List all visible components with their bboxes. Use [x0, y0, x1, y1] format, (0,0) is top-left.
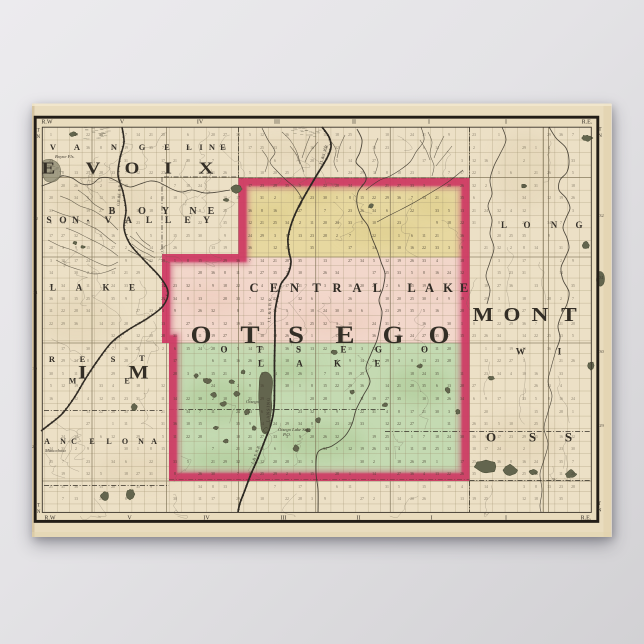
svg-text:9: 9: [199, 372, 201, 376]
svg-text:27: 27: [99, 209, 103, 213]
svg-text:O: O: [429, 322, 450, 349]
svg-text:26: 26: [571, 196, 575, 200]
svg-text:10: 10: [385, 133, 389, 137]
svg-text:17: 17: [410, 410, 414, 414]
svg-text:32: 32: [599, 213, 604, 218]
svg-text:30: 30: [124, 447, 128, 451]
svg-text:27: 27: [360, 497, 364, 501]
svg-text:28: 28: [559, 410, 563, 414]
svg-text:33: 33: [124, 284, 128, 288]
svg-text:33: 33: [559, 372, 563, 376]
svg-text:4: 4: [548, 146, 550, 150]
svg-text:17: 17: [74, 259, 78, 263]
svg-text:9: 9: [174, 309, 176, 313]
svg-text:30: 30: [460, 435, 464, 439]
svg-text:18: 18: [124, 472, 128, 476]
svg-text:6: 6: [100, 435, 102, 439]
svg-text:1: 1: [535, 146, 537, 150]
svg-text:28: 28: [74, 309, 78, 313]
svg-text:35: 35: [310, 246, 314, 250]
svg-text:13: 13: [534, 284, 538, 288]
svg-text:27: 27: [397, 472, 401, 476]
svg-text:36: 36: [460, 234, 464, 238]
svg-text:7: 7: [324, 372, 326, 376]
svg-text:25: 25: [310, 322, 314, 326]
svg-text:13: 13: [460, 209, 464, 213]
svg-text:18: 18: [435, 397, 439, 401]
svg-text:13: 13: [198, 297, 202, 301]
svg-text:16: 16: [260, 384, 264, 388]
svg-text:20: 20: [571, 472, 575, 476]
svg-text:R: R: [332, 281, 342, 295]
svg-text:24: 24: [248, 234, 252, 238]
svg-text:22: 22: [323, 347, 327, 351]
svg-text:17: 17: [522, 259, 526, 263]
svg-text:29: 29: [547, 133, 551, 137]
svg-text:14: 14: [435, 146, 439, 150]
svg-text:21: 21: [260, 221, 264, 225]
svg-text:14: 14: [559, 271, 563, 275]
svg-text:2: 2: [485, 184, 487, 188]
svg-text:21: 21: [211, 460, 215, 464]
svg-text:32: 32: [323, 322, 327, 326]
svg-text:17: 17: [372, 271, 376, 275]
svg-text:25: 25: [260, 146, 264, 150]
svg-text:1: 1: [572, 410, 574, 414]
svg-text:25: 25: [99, 497, 103, 501]
svg-text:G: G: [139, 142, 146, 152]
svg-text:32: 32: [497, 209, 501, 213]
svg-text:15: 15: [372, 146, 376, 150]
svg-text:36: 36: [236, 259, 240, 263]
svg-text:34: 34: [460, 397, 464, 401]
svg-text:15: 15: [99, 485, 103, 489]
svg-text:32: 32: [335, 146, 339, 150]
svg-text:22: 22: [372, 234, 376, 238]
svg-text:23: 23: [435, 359, 439, 363]
svg-text:15: 15: [161, 447, 165, 451]
svg-text:15: 15: [186, 347, 190, 351]
svg-text:13: 13: [547, 485, 551, 489]
svg-text:C: C: [71, 437, 77, 446]
svg-text:A: A: [151, 437, 157, 446]
svg-text:23: 23: [559, 485, 563, 489]
svg-text:27: 27: [86, 422, 90, 426]
svg-text:18: 18: [447, 221, 451, 225]
svg-text:25: 25: [484, 497, 488, 501]
svg-text:2: 2: [473, 146, 475, 150]
svg-text:11: 11: [460, 372, 464, 376]
svg-text:34: 34: [534, 472, 538, 476]
svg-text:24: 24: [497, 447, 501, 451]
svg-text:29: 29: [484, 297, 488, 301]
svg-text:32: 32: [236, 460, 240, 464]
svg-text:O: O: [504, 305, 521, 326]
svg-text:21: 21: [472, 209, 476, 213]
svg-text:W: W: [516, 348, 526, 358]
svg-text:36: 36: [360, 384, 364, 388]
svg-text:22: 22: [273, 297, 277, 301]
svg-text:4: 4: [510, 209, 512, 213]
svg-text:8: 8: [386, 171, 388, 175]
svg-text:N: N: [37, 510, 41, 515]
svg-text:18: 18: [186, 184, 190, 188]
svg-text:10: 10: [260, 334, 264, 338]
svg-text:26: 26: [173, 246, 177, 250]
svg-text:13: 13: [310, 347, 314, 351]
svg-text:10: 10: [61, 259, 65, 263]
svg-text:2: 2: [299, 221, 301, 225]
svg-text:21: 21: [49, 485, 53, 489]
svg-text:V: V: [120, 120, 125, 126]
svg-text:21: 21: [124, 271, 128, 275]
svg-text:10: 10: [509, 422, 513, 426]
svg-text:35: 35: [285, 184, 289, 188]
svg-text:26: 26: [372, 447, 376, 451]
svg-text:24: 24: [484, 209, 488, 213]
svg-text:33: 33: [522, 397, 526, 401]
svg-text:A: A: [44, 437, 50, 446]
svg-text:V: V: [127, 515, 132, 521]
svg-text:32: 32: [447, 447, 451, 451]
svg-text:36: 36: [173, 422, 177, 426]
svg-text:10: 10: [186, 422, 190, 426]
svg-text:24: 24: [236, 410, 240, 414]
svg-text:12: 12: [99, 397, 103, 401]
svg-text:5: 5: [498, 422, 500, 426]
svg-text:13: 13: [323, 259, 327, 263]
svg-text:22: 22: [372, 196, 376, 200]
svg-text:11: 11: [124, 422, 128, 426]
svg-text:19: 19: [372, 397, 376, 401]
svg-text:11: 11: [223, 359, 227, 363]
svg-text:15: 15: [534, 410, 538, 414]
svg-text:3: 3: [187, 334, 189, 338]
svg-text:9: 9: [448, 133, 450, 137]
svg-text:34: 34: [335, 271, 339, 275]
svg-text:30: 30: [198, 397, 202, 401]
svg-text:10: 10: [298, 271, 302, 275]
svg-text:3: 3: [523, 485, 525, 489]
svg-text:20: 20: [310, 397, 314, 401]
svg-text:14: 14: [534, 246, 538, 250]
svg-text:4: 4: [150, 196, 152, 200]
svg-text:18: 18: [397, 460, 401, 464]
svg-text:9: 9: [548, 234, 550, 238]
svg-text:11: 11: [173, 435, 177, 439]
svg-text:35: 35: [410, 309, 414, 313]
svg-text:3: 3: [461, 159, 463, 163]
svg-text:L: L: [165, 216, 171, 226]
svg-text:19: 19: [509, 347, 513, 351]
svg-text:G: G: [383, 322, 404, 349]
svg-text:30: 30: [335, 309, 339, 313]
svg-text:12: 12: [223, 322, 227, 326]
svg-text:3: 3: [311, 497, 313, 501]
svg-text:36: 36: [86, 146, 90, 150]
svg-text:I: I: [164, 159, 172, 178]
svg-text:O: O: [523, 220, 530, 230]
svg-text:7: 7: [212, 447, 214, 451]
svg-text:31: 31: [484, 422, 488, 426]
svg-text:O: O: [125, 159, 140, 178]
svg-text:2: 2: [237, 384, 239, 388]
svg-text:17: 17: [248, 184, 252, 188]
svg-text:1: 1: [137, 447, 139, 451]
svg-text:19: 19: [86, 209, 90, 213]
svg-text:6: 6: [274, 159, 276, 163]
svg-text:10: 10: [223, 196, 227, 200]
svg-text:13: 13: [435, 472, 439, 476]
svg-text:15: 15: [74, 297, 78, 301]
svg-text:30: 30: [49, 372, 53, 376]
svg-text:31: 31: [422, 133, 426, 137]
svg-text:19: 19: [559, 196, 563, 200]
svg-text:8: 8: [535, 485, 537, 489]
svg-text:8: 8: [62, 171, 64, 175]
svg-text:11: 11: [323, 133, 327, 137]
svg-text:T: T: [37, 129, 40, 134]
svg-text:29: 29: [136, 271, 140, 275]
svg-text:32: 32: [310, 410, 314, 414]
svg-text:18: 18: [335, 133, 339, 137]
svg-text:E: E: [129, 283, 135, 293]
svg-text:7: 7: [411, 196, 413, 200]
svg-text:N: N: [36, 135, 40, 140]
svg-text:9: 9: [199, 209, 201, 213]
svg-text:5: 5: [274, 359, 276, 363]
svg-text:21: 21: [435, 234, 439, 238]
svg-text:24: 24: [571, 397, 575, 401]
svg-text:28: 28: [460, 309, 464, 313]
svg-text:28: 28: [335, 184, 339, 188]
svg-text:18: 18: [310, 309, 314, 313]
svg-text:21: 21: [435, 196, 439, 200]
svg-text:18: 18: [149, 209, 153, 213]
svg-text:20: 20: [310, 435, 314, 439]
svg-text:1: 1: [485, 347, 487, 351]
svg-text:22: 22: [186, 435, 190, 439]
svg-text:34: 34: [236, 133, 240, 137]
svg-text:14: 14: [49, 271, 53, 275]
svg-text:5: 5: [199, 284, 201, 288]
svg-text:36: 36: [74, 322, 78, 326]
svg-text:P.O.: P.O.: [282, 432, 291, 437]
svg-text:Y: Y: [203, 216, 210, 226]
svg-text:9: 9: [336, 410, 338, 414]
svg-text:27: 27: [410, 422, 414, 426]
svg-text:10: 10: [397, 246, 401, 250]
svg-text:O: O: [220, 345, 227, 355]
svg-text:19: 19: [460, 297, 464, 301]
svg-text:26: 26: [323, 271, 327, 275]
svg-text:33: 33: [348, 221, 352, 225]
svg-text:33: 33: [273, 146, 277, 150]
svg-text:28: 28: [124, 322, 128, 326]
svg-text:12: 12: [348, 447, 352, 451]
svg-text:16: 16: [410, 246, 414, 250]
svg-text:27: 27: [522, 309, 526, 313]
svg-text:20: 20: [161, 246, 165, 250]
svg-text:S: S: [111, 354, 116, 364]
svg-text:25: 25: [522, 472, 526, 476]
svg-text:3: 3: [324, 284, 326, 288]
svg-text:19: 19: [111, 196, 115, 200]
svg-text:34: 34: [298, 422, 302, 426]
svg-text:23: 23: [124, 397, 128, 401]
svg-text:17: 17: [248, 146, 252, 150]
svg-text:T: T: [312, 281, 321, 295]
svg-text:7: 7: [125, 133, 127, 137]
svg-text:32: 32: [186, 284, 190, 288]
svg-text:11: 11: [410, 447, 414, 451]
svg-text:26: 26: [223, 171, 227, 175]
svg-text:23: 23: [310, 234, 314, 238]
svg-text:N: N: [532, 305, 549, 326]
svg-text:35: 35: [136, 485, 140, 489]
svg-text:20: 20: [111, 485, 115, 489]
svg-text:23: 23: [385, 146, 389, 150]
svg-text:32: 32: [460, 271, 464, 275]
svg-text:22: 22: [534, 334, 538, 338]
svg-text:26: 26: [410, 460, 414, 464]
svg-text:17: 17: [460, 171, 464, 175]
svg-text:6: 6: [336, 485, 338, 489]
svg-text:25: 25: [410, 297, 414, 301]
svg-text:27: 27: [111, 246, 115, 250]
svg-text:L: L: [186, 142, 192, 152]
svg-text:1: 1: [174, 259, 176, 263]
svg-text:8: 8: [411, 359, 413, 363]
svg-text:25: 25: [360, 372, 364, 376]
svg-text:4: 4: [461, 485, 463, 489]
svg-text:24: 24: [111, 284, 115, 288]
svg-text:3: 3: [398, 359, 400, 363]
svg-text:34: 34: [61, 284, 65, 288]
svg-text:8: 8: [523, 246, 525, 250]
svg-text:O: O: [486, 430, 496, 445]
svg-text:15: 15: [460, 334, 464, 338]
svg-text:16: 16: [534, 372, 538, 376]
svg-text:26: 26: [323, 435, 327, 439]
svg-text:28: 28: [547, 297, 551, 301]
svg-text:4: 4: [436, 297, 438, 301]
svg-text:16: 16: [310, 146, 314, 150]
svg-text:S: S: [565, 430, 572, 445]
svg-text:7: 7: [572, 133, 574, 137]
svg-text:11: 11: [198, 497, 202, 501]
svg-text:E: E: [270, 281, 278, 295]
svg-text:1: 1: [286, 309, 288, 313]
svg-text:14: 14: [348, 159, 352, 163]
svg-text:33: 33: [248, 410, 252, 414]
svg-text:29: 29: [223, 259, 227, 263]
svg-text:27: 27: [472, 384, 476, 388]
svg-text:2: 2: [162, 347, 164, 351]
svg-text:19: 19: [248, 271, 252, 275]
svg-text:23: 23: [298, 410, 302, 414]
svg-text:35: 35: [111, 297, 115, 301]
svg-text:7: 7: [560, 221, 562, 225]
svg-text:15: 15: [111, 397, 115, 401]
svg-text:19: 19: [360, 447, 364, 451]
svg-text:1: 1: [112, 422, 114, 426]
svg-text:T: T: [139, 353, 145, 363]
svg-text:6: 6: [299, 472, 301, 476]
svg-text:3: 3: [50, 259, 52, 263]
svg-text:35: 35: [49, 460, 53, 464]
svg-text:28: 28: [223, 297, 227, 301]
svg-text:21: 21: [248, 435, 252, 439]
svg-text:28: 28: [161, 334, 165, 338]
svg-text:21: 21: [173, 159, 177, 163]
svg-text:25: 25: [186, 234, 190, 238]
svg-text:21: 21: [559, 359, 563, 363]
svg-text:1: 1: [274, 397, 276, 401]
svg-text:36: 36: [248, 209, 252, 213]
svg-text:E: E: [89, 437, 94, 446]
svg-text:25: 25: [348, 133, 352, 137]
svg-text:5: 5: [373, 259, 375, 263]
svg-text:29: 29: [32, 444, 37, 449]
svg-text:31: 31: [149, 472, 153, 476]
svg-text:8: 8: [510, 460, 512, 464]
svg-text:16: 16: [435, 309, 439, 313]
svg-text:8: 8: [423, 271, 425, 275]
svg-text:28: 28: [161, 133, 165, 137]
svg-text:9: 9: [461, 246, 463, 250]
svg-text:32: 32: [211, 309, 215, 313]
svg-text:8: 8: [311, 384, 313, 388]
svg-text:19: 19: [161, 284, 165, 288]
svg-text:35: 35: [298, 259, 302, 263]
svg-text:4: 4: [349, 146, 351, 150]
svg-text:6: 6: [125, 460, 127, 464]
svg-text:31: 31: [599, 275, 604, 280]
svg-text:O: O: [191, 322, 212, 349]
svg-text:35: 35: [460, 196, 464, 200]
svg-text:32: 32: [34, 216, 39, 221]
svg-text:E: E: [164, 142, 170, 152]
svg-text:16: 16: [298, 196, 302, 200]
svg-text:8: 8: [261, 209, 263, 213]
svg-text:15: 15: [422, 485, 426, 489]
svg-text:30: 30: [599, 349, 604, 354]
svg-text:35: 35: [397, 397, 401, 401]
svg-text:7: 7: [423, 435, 425, 439]
svg-text:10: 10: [522, 372, 526, 376]
svg-text:T: T: [37, 504, 40, 509]
svg-text:T: T: [598, 128, 601, 133]
svg-text:N: N: [290, 281, 299, 295]
svg-text:13: 13: [74, 497, 78, 501]
svg-text:22: 22: [149, 171, 153, 175]
svg-text:21: 21: [534, 171, 538, 175]
svg-text:19: 19: [61, 472, 65, 476]
svg-text:12: 12: [385, 259, 389, 263]
svg-text:28: 28: [310, 159, 314, 163]
svg-text:7: 7: [324, 209, 326, 213]
svg-text:7: 7: [237, 472, 239, 476]
svg-text:29: 29: [522, 435, 526, 439]
svg-text:31: 31: [273, 309, 277, 313]
svg-text:30: 30: [173, 497, 177, 501]
svg-text:3: 3: [62, 246, 64, 250]
svg-text:20: 20: [49, 196, 53, 200]
svg-text:2: 2: [373, 460, 375, 464]
svg-text:8: 8: [212, 485, 214, 489]
svg-text:4: 4: [436, 259, 438, 263]
